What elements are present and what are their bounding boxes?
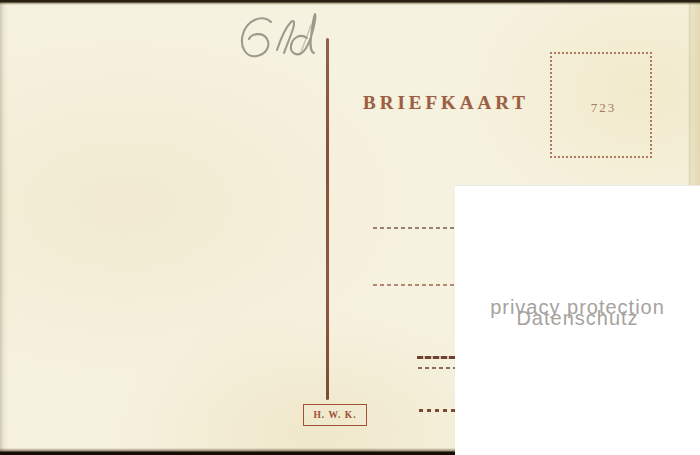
privacy-watermark: privacy protection Datenschutz xyxy=(455,297,700,328)
address-line-4 xyxy=(418,367,455,369)
card-top-edge xyxy=(0,0,700,5)
stamp-box-number: 723 xyxy=(552,100,650,116)
address-line-5 xyxy=(419,409,455,412)
center-divider-line xyxy=(326,38,329,400)
handwritten-note xyxy=(230,5,330,67)
publisher-mark-box: H. W. K. xyxy=(303,404,367,426)
privacy-protection-band: privacy protection Datenschutz xyxy=(455,185,700,455)
stamp-box: 723 xyxy=(550,52,652,158)
address-line-2 xyxy=(373,284,454,286)
card-left-edge xyxy=(0,0,10,455)
postcard-title: BRIEFKAART xyxy=(363,92,529,114)
address-line-3 xyxy=(417,356,455,359)
publisher-mark: H. W. K. xyxy=(313,410,356,420)
postcard-scan: BRIEFKAART 723 H. W. K. privacy protecti… xyxy=(0,0,700,455)
address-line-1 xyxy=(373,227,457,229)
